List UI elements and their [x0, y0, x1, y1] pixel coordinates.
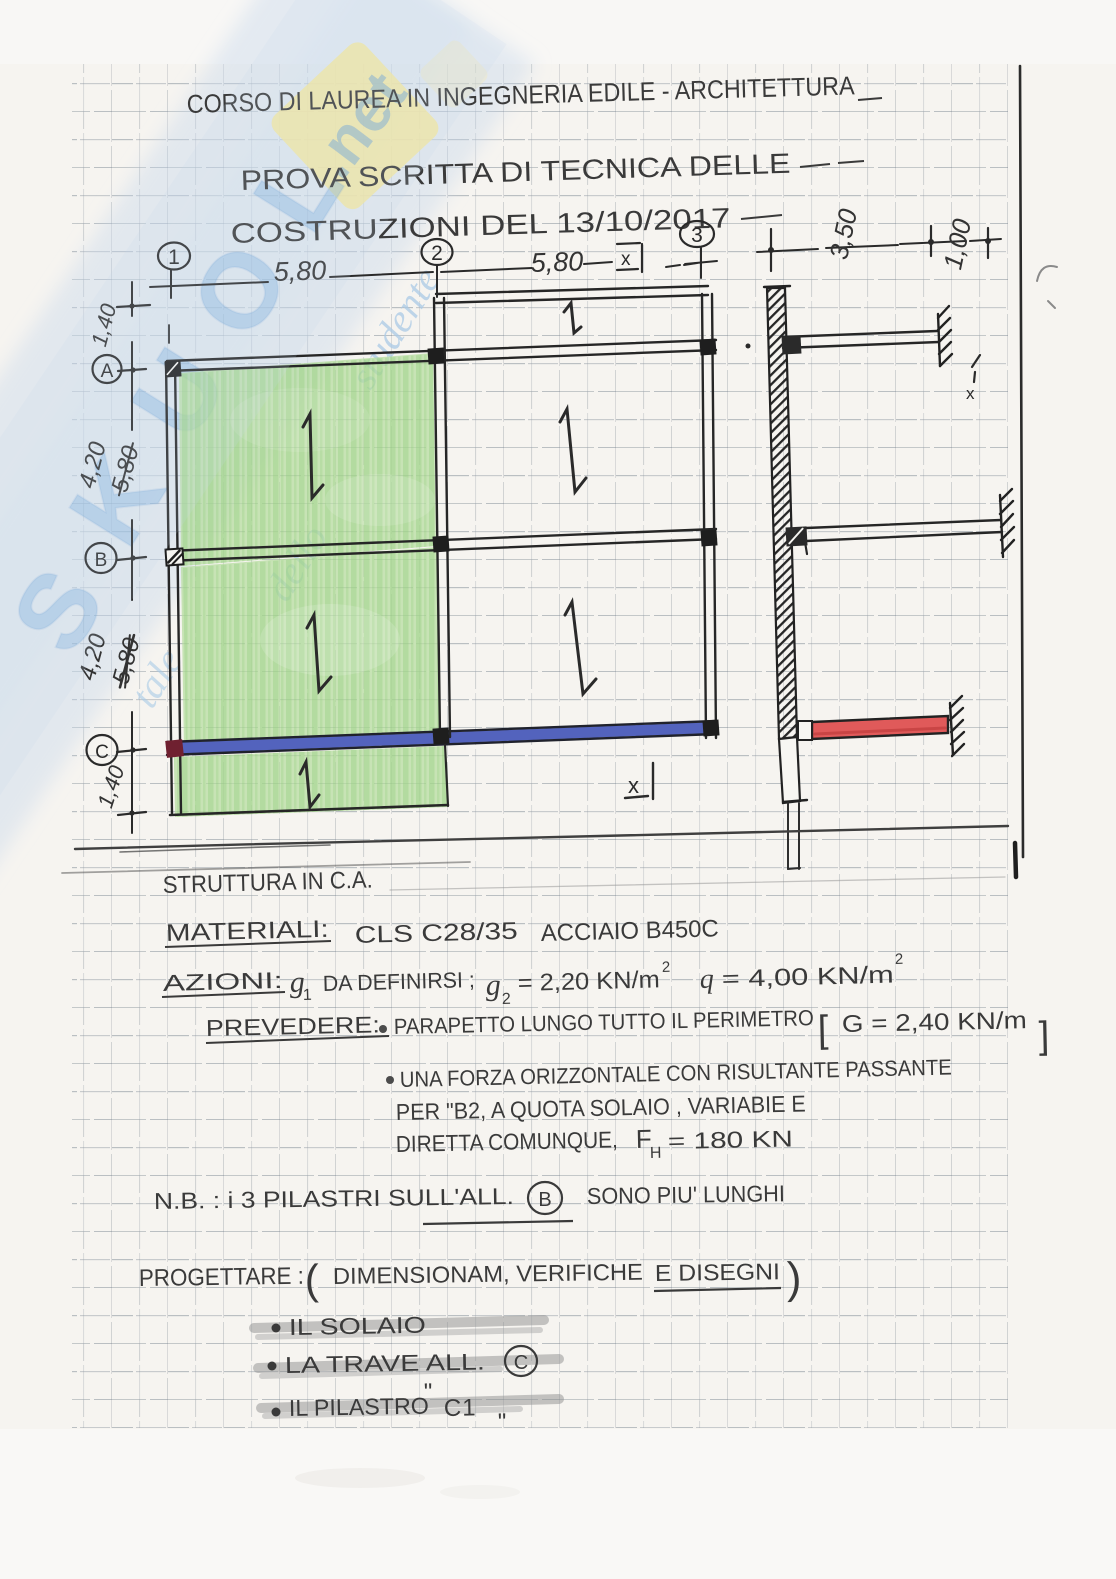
svg-text:IL PILASTRO: IL PILASTRO	[289, 1393, 429, 1421]
svg-text:(: (	[304, 1256, 319, 1303]
svg-text:SONO PIU' LUNGHI: SONO PIU' LUNGHI	[587, 1180, 785, 1209]
svg-text:2: 2	[662, 959, 671, 976]
svg-text:G = 2,40 KN/m: G = 2,40 KN/m	[842, 1007, 1028, 1038]
svg-text:DA DEFINIRSI ;: DA DEFINIRSI ;	[322, 967, 475, 996]
svg-text:C1: C1	[444, 1394, 477, 1422]
svg-text:CLS C28/35: CLS C28/35	[354, 918, 518, 949]
svg-text:N.B. : i 3 PILASTRI SULL'ALL.: N.B. : i 3 PILASTRI SULL'ALL.	[154, 1183, 514, 1214]
svg-text:1: 1	[303, 987, 312, 1004]
svg-text:STRUTTURA IN C.A.: STRUTTURA IN C.A.	[162, 867, 373, 899]
svg-text:2: 2	[895, 951, 904, 968]
svg-text:C: C	[95, 742, 109, 763]
svg-text:2: 2	[431, 242, 443, 265]
svg-text:ACCIAIO B450C: ACCIAIO B450C	[540, 915, 719, 947]
svg-text:x: x	[621, 249, 631, 270]
svg-text:IL SOLAIO: IL SOLAIO	[289, 1312, 426, 1340]
svg-text:LA TRAVE ALL.: LA TRAVE ALL.	[285, 1349, 485, 1378]
svg-text:": "	[498, 1409, 507, 1436]
svg-text:AZIONI:: AZIONI:	[162, 967, 283, 996]
svg-text:": "	[424, 1379, 433, 1406]
svg-text:PROGETTARE :: PROGETTARE :	[139, 1263, 304, 1292]
svg-text:g: g	[485, 969, 501, 1002]
svg-text:E DISEGNI: E DISEGNI	[655, 1258, 780, 1286]
svg-text:DIRETTA COMUNQUE,: DIRETTA COMUNQUE,	[396, 1126, 618, 1157]
svg-text:H: H	[650, 1145, 662, 1162]
svg-text:x: x	[966, 384, 975, 403]
svg-text:x: x	[628, 773, 639, 798]
svg-text:2: 2	[502, 991, 511, 1008]
svg-text:q: q	[699, 964, 714, 995]
svg-text:= 2,20 KN/m: = 2,20 KN/m	[517, 966, 660, 997]
svg-text:): )	[786, 1254, 801, 1303]
svg-text:= 180 KN: = 180 KN	[668, 1125, 794, 1154]
svg-text:3: 3	[691, 224, 703, 247]
svg-text:C: C	[514, 1352, 528, 1374]
svg-text:DIMENSIONAM, VERIFICHE: DIMENSIONAM, VERIFICHE	[333, 1259, 643, 1289]
svg-text:= 4,00 KN/m: = 4,00 KN/m	[721, 962, 894, 993]
svg-text:5,80: 5,80	[530, 246, 584, 278]
svg-text:]: ]	[1038, 1015, 1049, 1057]
svg-text:[: [	[817, 1009, 829, 1051]
svg-text:B: B	[538, 1189, 551, 1211]
